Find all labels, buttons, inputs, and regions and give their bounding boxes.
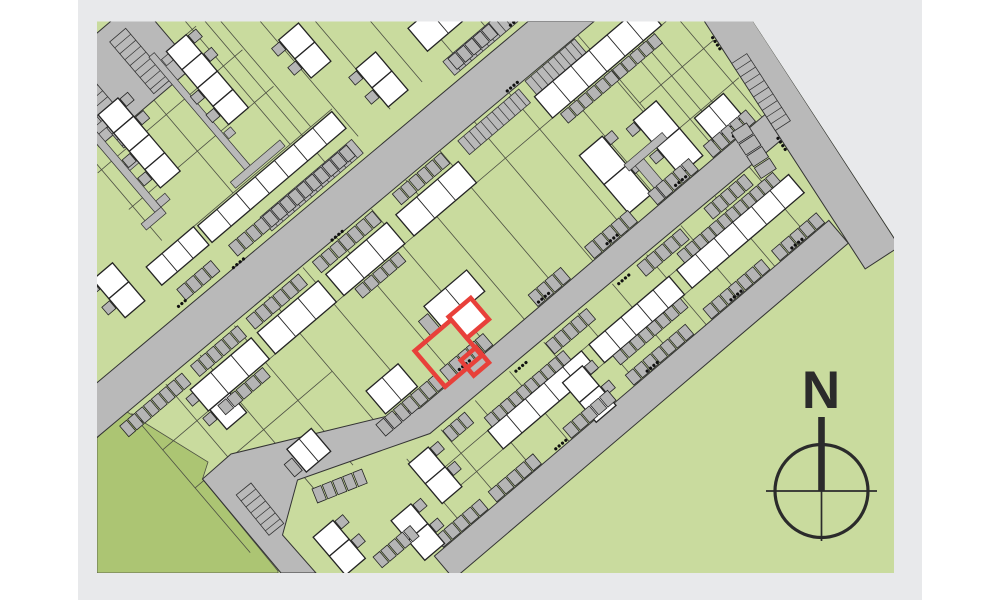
svg-text:N: N xyxy=(802,361,840,420)
